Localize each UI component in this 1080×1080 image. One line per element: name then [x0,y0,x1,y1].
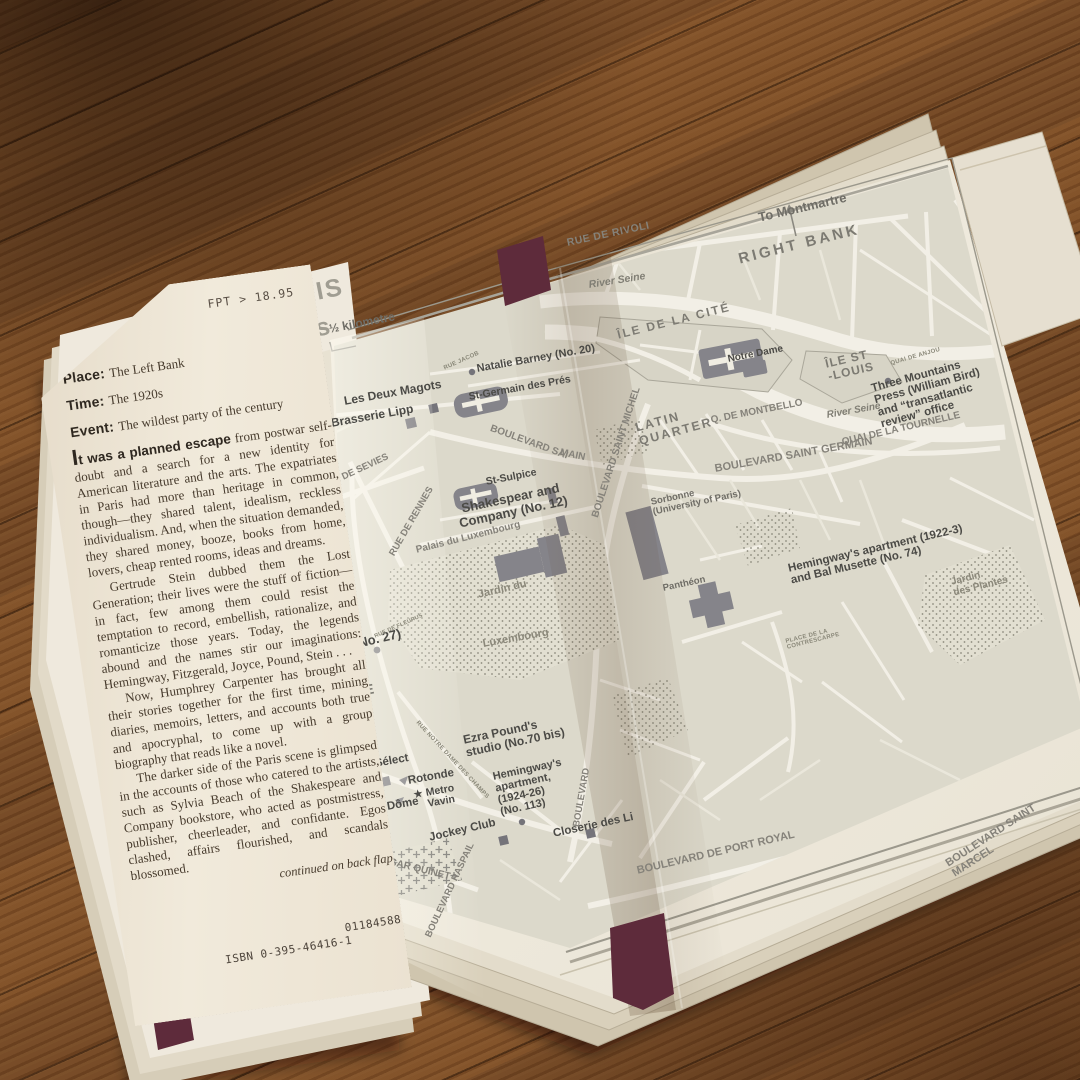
map-label: Q. DE MONTBELLO [710,398,804,426]
map-label: BOULEVARD [572,767,592,827]
photo-of-open-book: { "flap": { "price": "FPT > 18.95", "fie… [0,0,1080,1080]
map-label: BOULEVARD SAINT MARCEL [944,786,1071,880]
field-label: Event: [69,418,115,440]
map-label: St-Germain des Prés [468,374,572,403]
map-label: Jockey Club [428,817,497,844]
map-label: Sorbonne (University of Paris) [650,479,742,518]
label-to-montmartre: To Montmartre [757,191,848,225]
field-value: The Left Bank [108,355,185,380]
price: FPT > 18.95 [207,285,295,311]
map-label: ÎLE ST -LOUIS [824,348,875,384]
isbn-block: 01184588 ISBN 0-395-46416-1 [222,911,414,966]
map-label: Panthéon [662,575,706,594]
map-label: BOULEVARD SAI [488,424,569,462]
map-label: BOULEVARD SAINT GERMAIN [714,436,874,475]
map-label: QUAI DE ANJOU [890,347,941,367]
map-label: RIGHT BANK [737,222,861,268]
field-value: The 1920s [108,385,164,407]
map-label: Closerie des Li [552,811,635,840]
map-label: RUE JACOB [443,351,480,372]
map-label: BOULEVARD RASPAIL [424,842,477,940]
map-label: Brasserie Lipp [330,403,414,430]
map-label: River Seine [588,271,646,291]
map-label: BOULEVARD SAINT MICHEL [591,386,643,519]
scale-label: ½ kilometre [328,310,396,335]
map-label: Notre Dame [727,344,784,365]
scene: { "flap": { "price": "FPT > 18.95", "fie… [0,0,1080,1080]
map-label: Jardin du [477,579,528,602]
map-label: Jardin des Plantes [950,565,1009,599]
map-label: Metro Vavin [425,783,457,810]
field-label: Time: [65,392,105,413]
map-label: RUE DE RIVOLI [566,221,651,250]
map-label: Les Deux Magots [343,378,442,408]
map-label: Ezra Pound's studio (No.70 bis) [462,713,566,759]
map-label: Natalie Barney (No. 20) [476,343,596,376]
map-label: LATIN QUARTER [634,402,714,448]
map-label: ÎLE DE LA CITÉ [616,301,732,342]
map-label: PLACE DE LA CONTRESCARPE [785,626,840,652]
map-label: Dôme [386,795,420,813]
map-label: Luxembourg [482,627,550,650]
map-label: BOULEVARD DE PORT ROYAL [636,830,796,878]
map-label: River Seine [826,402,882,422]
map-label: Hemingway's apartment, (1924-26) (No. 11… [492,757,570,818]
map-label: Hemingway's apartment (1922-3) and Bal M… [787,523,967,587]
